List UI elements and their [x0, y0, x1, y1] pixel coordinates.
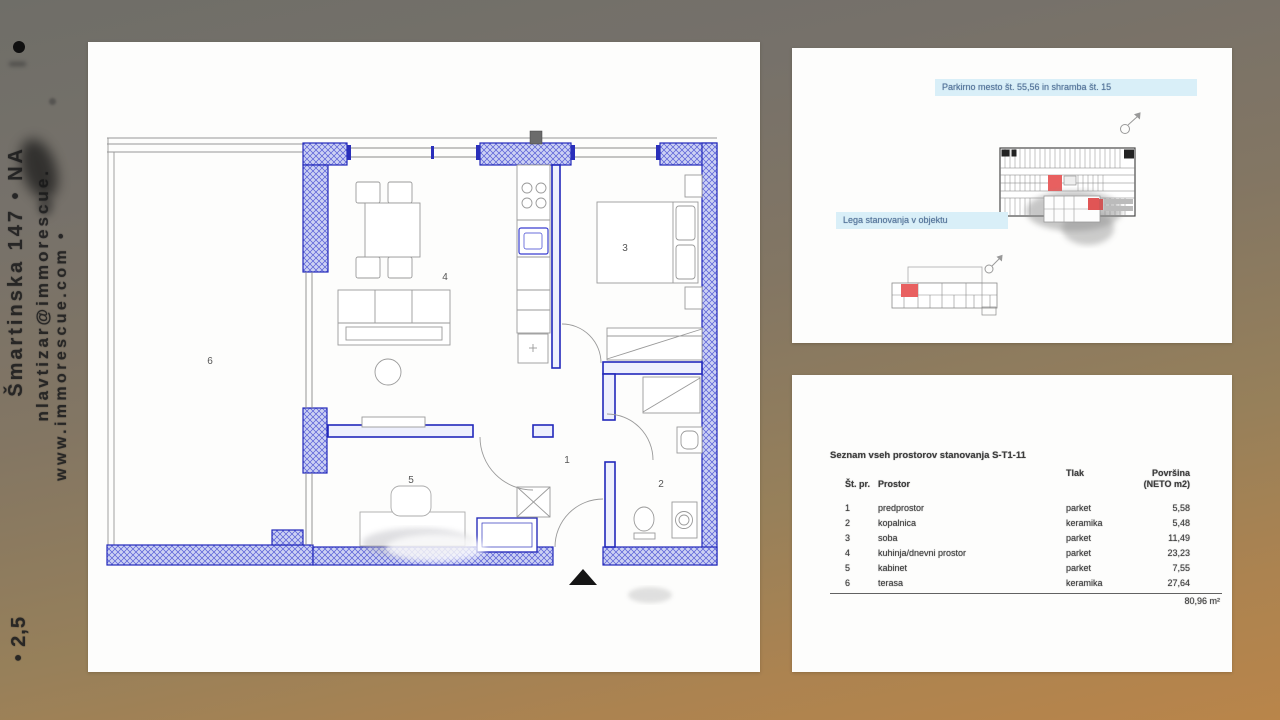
toilet: [634, 507, 655, 539]
room-area-table: Seznam vseh prostorov stanovanja S-T1-11…: [830, 450, 1222, 608]
furniture: [338, 165, 702, 552]
cell-floor: parket: [1066, 546, 1140, 561]
bullet-dot: [13, 41, 25, 53]
table-header-row: Št. pr. Prostor Tlak Površina (NETO m2): [830, 468, 1222, 490]
cell-room: kopalnica: [878, 516, 1066, 531]
highlighted-parking-spot: [1048, 175, 1062, 191]
room-number-3: 3: [622, 243, 628, 254]
building-footprint: [892, 267, 997, 315]
storage-detail-callout: [1026, 191, 1133, 245]
cell-num: 4: [830, 546, 878, 561]
cell-area: 11,49: [1140, 531, 1190, 546]
cell-room: kuhinja/dnevni prostor: [878, 546, 1066, 561]
washbasin: [677, 427, 702, 453]
table-title: Seznam vseh prostorov stanovanja S-T1-11: [830, 450, 1222, 461]
north-arrow-icon: [985, 256, 1002, 274]
header-area: Površina (NETO m2): [1140, 468, 1190, 490]
smudge-mark: [9, 62, 26, 66]
vent-shaft-marker: [530, 131, 542, 144]
cell-num: 2: [830, 516, 878, 531]
cell-num: 6: [830, 576, 878, 591]
entrance-marker-icon: [569, 569, 597, 585]
table-row: 4 kuhinja/dnevni prostor parket 23,23: [830, 546, 1222, 561]
area-table-panel: Seznam vseh prostorov stanovanja S-T1-11…: [792, 375, 1232, 672]
cell-num: 1: [830, 501, 878, 516]
bullet-dot-small: [49, 98, 56, 105]
sofa: [338, 290, 450, 345]
room-number-4: 4: [442, 272, 448, 283]
room-number-1: 1: [564, 455, 570, 466]
shower: [643, 377, 700, 413]
table-row: 1 predprostor parket 5,58: [830, 501, 1222, 516]
photo-smudge-entry: [628, 587, 672, 603]
cell-room: predprostor: [878, 501, 1066, 516]
cell-area: 23,23: [1140, 546, 1190, 561]
highlighted-apartment-unit: [901, 284, 918, 297]
cell-room: kabinet: [878, 561, 1066, 576]
room-number-5: 5: [408, 475, 414, 486]
header-room: Prostor: [878, 468, 1066, 490]
room-number-2: 2: [658, 479, 664, 490]
cell-floor: keramika: [1066, 516, 1140, 531]
cell-area: 27,64: [1140, 576, 1190, 591]
location-panel: Parkirno mesto št. 55,56 in shramba št. …: [792, 48, 1232, 343]
website-vertical-text: www.immorescue.com •: [53, 230, 71, 481]
table-row: 2 kopalnica keramika 5,48: [830, 516, 1222, 531]
bed: [597, 175, 702, 309]
table-row: 5 kabinet parket 7,55: [830, 561, 1222, 576]
coffee-table: [375, 359, 401, 385]
dining-set: [356, 182, 420, 278]
tv-bench: [362, 417, 425, 427]
apartment-location-label: Lega stanovanja v objektu: [836, 212, 1008, 229]
ink-smudge-small: [38, 196, 53, 216]
north-arrow-icon: [1121, 113, 1141, 134]
header-floor: Tlak: [1066, 468, 1140, 490]
garage-plan: [1000, 148, 1135, 245]
cell-area: 5,48: [1140, 516, 1190, 531]
wardrobe: [607, 328, 702, 360]
room-numbers: 1 2 3 4 5 6: [207, 243, 664, 490]
photo-smudge-white: [386, 534, 486, 562]
floor-plan-panel: 1 2 3 4 5 6: [88, 42, 760, 672]
header-num: Št. pr.: [830, 468, 878, 490]
cell-num: 3: [830, 531, 878, 546]
slide-background: { "left_sidebar": { "line1": "Šmartinska…: [0, 0, 1280, 720]
room-number-6: 6: [207, 356, 213, 367]
cell-floor: parket: [1066, 501, 1140, 516]
cell-room: terasa: [878, 576, 1066, 591]
cell-floor: parket: [1066, 531, 1140, 546]
floor-plan-drawing: 1 2 3 4 5 6: [88, 42, 760, 672]
table-row: 3 soba parket 11,49: [830, 531, 1222, 546]
entry-closet: [477, 518, 537, 552]
scale-note-text: • 2,5: [8, 616, 31, 661]
kitchen-counter: [517, 165, 550, 363]
cell-area: 7,55: [1140, 561, 1190, 576]
parking-info-label: Parkirno mesto št. 55,56 in shramba št. …: [935, 79, 1197, 96]
cell-area: 5,58: [1140, 501, 1190, 516]
cell-floor: parket: [1066, 561, 1140, 576]
total-area: 80,96 m²: [830, 593, 1222, 608]
address-vertical-text: Šmartinska 147 • NA: [5, 146, 28, 397]
washing-machine: [672, 502, 697, 538]
cell-floor: keramika: [1066, 576, 1140, 591]
table-row: 6 terasa keramika 27,64: [830, 576, 1222, 591]
cell-room: soba: [878, 531, 1066, 546]
highlighted-storage-unit: [1088, 198, 1099, 210]
cell-num: 5: [830, 561, 878, 576]
shaft: [517, 487, 550, 517]
